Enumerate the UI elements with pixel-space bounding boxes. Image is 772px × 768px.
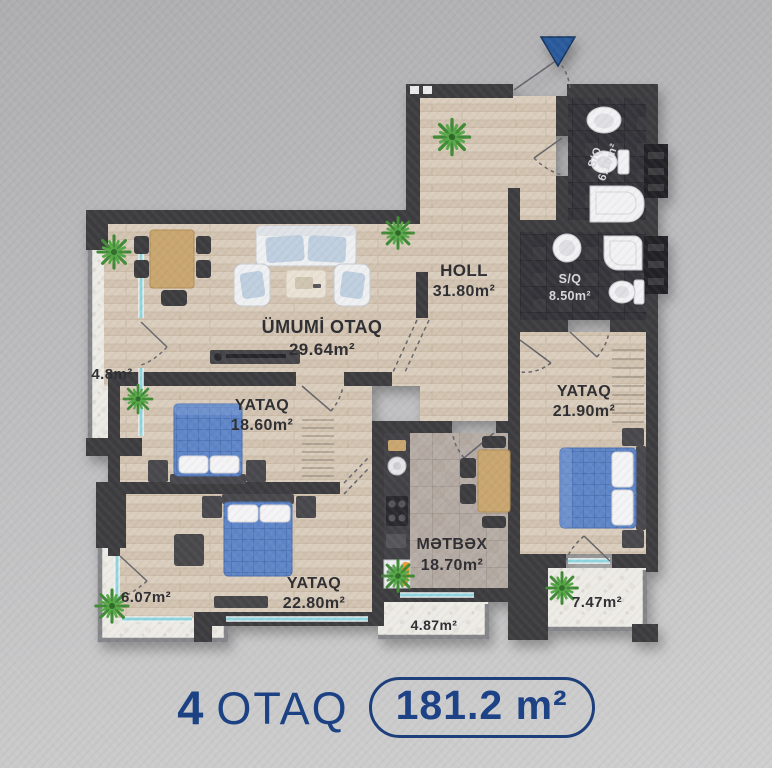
wall — [86, 224, 108, 250]
rooms-count-value: 4 — [177, 680, 204, 735]
room-label-holl-name: HOLL — [440, 261, 488, 280]
wall-vent — [423, 86, 432, 94]
room-label-balcony-br-area: 7.47m² — [572, 594, 622, 611]
room-label-bath-mid-area: 8.50m² — [549, 289, 591, 303]
kitchen-counter — [384, 433, 410, 561]
armchair — [234, 264, 270, 306]
wall — [86, 210, 420, 224]
plant-icon — [435, 120, 470, 155]
wall — [406, 84, 513, 98]
wall — [496, 421, 520, 433]
floor-plan-svg: HOLL 31.80m² S/Q 6.10m² S/Q 8.50m² ÜMUMİ… — [0, 0, 772, 768]
wall — [416, 272, 428, 318]
room-label-living-area: 29.64m² — [289, 340, 355, 359]
wall — [508, 220, 658, 232]
plant-icon — [383, 561, 414, 592]
wall — [108, 372, 120, 482]
tv-console — [210, 350, 300, 364]
room-label-bedroom1-area: 18.60m² — [231, 417, 293, 434]
wall — [556, 176, 568, 224]
floor-plan-page: HOLL 31.80m² S/Q 6.10m² S/Q 8.50m² ÜMUMİ… — [0, 0, 772, 768]
room-label-kitchen-area: 18.70m² — [421, 557, 483, 574]
wall — [508, 188, 520, 640]
sofa — [256, 226, 356, 266]
wall-vent — [410, 86, 419, 94]
armchair — [334, 264, 370, 306]
total-area-badge: 181.2 m² — [369, 677, 595, 738]
room-label-kitchen-name: MƏTBƏX — [417, 536, 488, 553]
room-label-holl-area: 31.80m² — [433, 283, 495, 300]
room-label-bedroom1-name: YATAQ — [235, 397, 289, 414]
wall — [610, 320, 658, 332]
wall — [344, 372, 392, 386]
rooms-word: OTAQ — [216, 683, 348, 735]
entry-door-leaf — [514, 60, 557, 90]
room-label-balcony-left-area: 4.8m² — [91, 366, 132, 383]
toilet — [618, 150, 629, 174]
pouf — [174, 534, 204, 566]
room-label-balcony-bm-area: 4.87m² — [411, 617, 458, 633]
wall — [612, 554, 658, 568]
room-label-bedroom2-name: YATAQ — [557, 383, 611, 400]
wall — [548, 554, 566, 568]
wall — [406, 84, 420, 222]
plant-icon — [383, 218, 414, 249]
total-area-value: 181.2 m² — [396, 682, 568, 728]
wall — [194, 612, 212, 642]
room-label-bath-mid-name: S/Q — [559, 272, 582, 286]
rooms-count-label: 4 OTAQ — [177, 680, 348, 735]
wall — [108, 494, 120, 556]
wall — [556, 96, 568, 136]
plant-icon — [124, 385, 152, 413]
room-label-bedroom2-area: 21.90m² — [553, 403, 615, 420]
wall — [632, 624, 658, 642]
plant-icon — [98, 236, 130, 268]
wall — [520, 554, 548, 640]
building: HOLL 31.80m² S/Q 6.10m² S/Q 8.50m² ÜMUMİ… — [86, 37, 668, 642]
room-label-balcony-bl-area: 6.07m² — [121, 589, 171, 606]
coffee-table — [286, 270, 326, 298]
room-label-living-name: ÜMUMİ OTAQ — [262, 317, 383, 337]
entrance-arrow-icon — [541, 37, 575, 66]
tv-console — [214, 596, 268, 608]
wall — [108, 372, 296, 386]
wall — [567, 84, 658, 98]
wall — [520, 320, 568, 332]
plan-summary: 4 OTAQ 181.2 m² — [0, 672, 772, 742]
room-label-bedroom3-name: YATAQ — [287, 575, 341, 592]
room-label-bedroom3-area: 22.80m² — [283, 595, 345, 612]
